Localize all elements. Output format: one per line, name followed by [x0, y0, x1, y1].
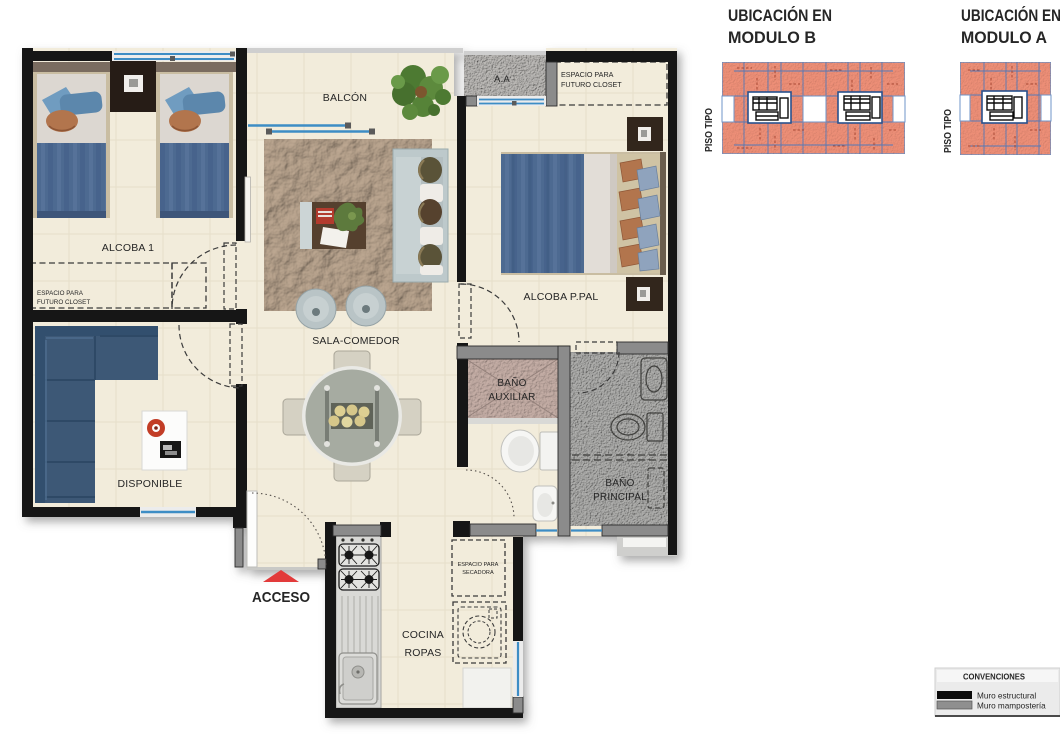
svg-text:ACCESO: ACCESO [252, 589, 310, 606]
svg-text:ALCOBA 1: ALCOBA 1 [102, 242, 154, 254]
svg-text:PISO TIPO: PISO TIPO [943, 109, 954, 153]
svg-text:BALCÓN: BALCÓN [323, 91, 367, 104]
svg-text:A.A: A.A [494, 74, 510, 85]
svg-text:PISO TIPO: PISO TIPO [704, 108, 715, 152]
svg-text:DISPONIBLE: DISPONIBLE [117, 478, 182, 490]
svg-text:AUXILIAR: AUXILIAR [488, 392, 535, 403]
svg-text:COCINA: COCINA [402, 629, 444, 641]
svg-text:MODULO B: MODULO B [728, 29, 816, 47]
svg-text:ROPAS: ROPAS [405, 647, 442, 659]
svg-text:ESPACIO PARA: ESPACIO PARA [561, 70, 614, 79]
svg-text:ALCOBA P.PAL: ALCOBA P.PAL [524, 291, 599, 303]
svg-text:FUTURO CLOSET: FUTURO CLOSET [561, 80, 622, 89]
svg-text:ESPACIO PARA: ESPACIO PARA [37, 290, 84, 297]
svg-text:BAÑO: BAÑO [497, 376, 526, 389]
svg-text:UBICACIÓN EN: UBICACIÓN EN [728, 6, 832, 25]
svg-text:UBICACIÓN EN: UBICACIÓN EN [961, 6, 1060, 25]
svg-text:PRINCIPAL: PRINCIPAL [593, 492, 647, 503]
svg-text:Muro estructural: Muro estructural [977, 692, 1036, 701]
svg-text:BAÑO: BAÑO [605, 476, 634, 489]
svg-text:Muro mampostería: Muro mampostería [977, 702, 1046, 711]
svg-text:FUTURO CLOSET: FUTURO CLOSET [37, 299, 90, 306]
svg-text:CONVENCIONES: CONVENCIONES [963, 672, 1025, 682]
svg-text:SECADORA: SECADORA [462, 570, 494, 576]
svg-text:SALA-COMEDOR: SALA-COMEDOR [312, 335, 400, 347]
svg-text:MODULO A: MODULO A [961, 29, 1047, 47]
svg-text:ESPACIO PARA: ESPACIO PARA [458, 562, 499, 568]
